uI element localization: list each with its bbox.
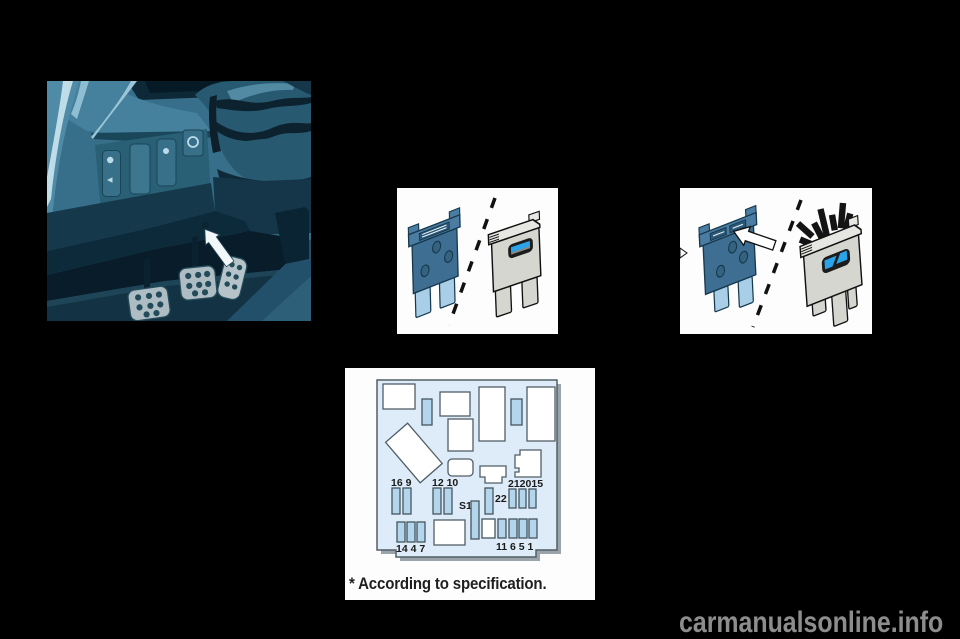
- svg-text:11 6 5 1: 11 6 5 1: [496, 541, 534, 553]
- svg-text:22: 22: [495, 493, 507, 505]
- svg-text:S1: S1: [459, 500, 472, 512]
- svg-text:14 4 7: 14 4 7: [396, 543, 425, 555]
- svg-text:212015: 212015: [508, 478, 543, 490]
- svg-text:12 10: 12 10: [432, 477, 458, 489]
- svg-text:16 9: 16 9: [391, 477, 412, 489]
